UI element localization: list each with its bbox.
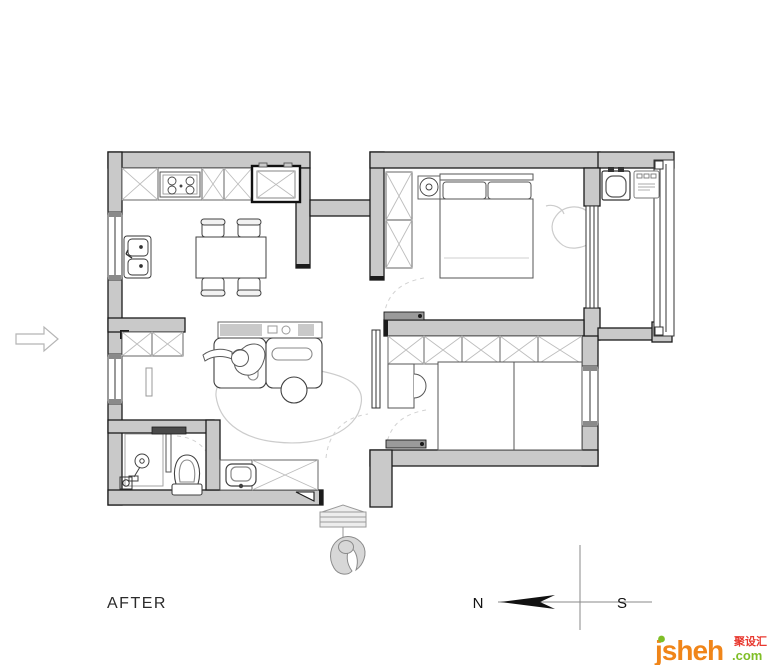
- window-kidsroom-right: [582, 366, 598, 426]
- kitchen-sink-icon: [124, 236, 151, 278]
- bedroom-wardrobe: [386, 172, 412, 268]
- wall-bathroom-right: [206, 420, 220, 490]
- dining-chair: [237, 278, 261, 296]
- wall-left-b: [108, 278, 122, 356]
- desk-chair: [414, 374, 426, 398]
- bathroom: [120, 427, 202, 495]
- bedroom-sliding-door: [384, 312, 424, 320]
- kidsroom-sliding-door: [386, 440, 426, 448]
- person-head: [339, 541, 354, 554]
- window-left-lower: [108, 354, 122, 404]
- towel-bar: [152, 427, 186, 434]
- shower-partition: [166, 434, 171, 472]
- wall-bedroom-right-upper: [584, 168, 600, 206]
- wall-hall-divider: [108, 318, 185, 332]
- bathroom-pocket-door: [146, 368, 152, 396]
- wall-rooms-divider: [384, 320, 584, 336]
- dining-chair: [201, 219, 225, 237]
- cooktop-icon: [160, 172, 200, 197]
- plan-stage-label: AFTER: [107, 595, 167, 612]
- toilet-icon: [172, 455, 202, 495]
- wall-balcony-bottom: [598, 328, 656, 340]
- tv-console: [218, 322, 322, 338]
- balcony-appliance-icon: [634, 171, 659, 198]
- window-left-upper: [108, 212, 122, 280]
- bedside-lamp-icon: [418, 176, 440, 199]
- wall-left-a: [108, 152, 122, 214]
- fridge-icon: [252, 163, 300, 202]
- dining-table: [196, 237, 266, 278]
- washing-machine-icon: [602, 167, 630, 200]
- compass: N S: [473, 545, 652, 630]
- bedroom-door-swing: [384, 278, 424, 316]
- double-bed: [440, 174, 533, 278]
- logo-j-dot: [658, 636, 665, 643]
- logo-tld-text: .com: [732, 648, 762, 663]
- sofa: [214, 338, 322, 388]
- washbasin-icon: [226, 464, 256, 488]
- floor-plan-canvas: AFTER N S jsheh 聚设汇 .com: [0, 0, 770, 665]
- compass-north-label: N: [473, 595, 484, 612]
- entry-person: [331, 537, 366, 575]
- desk: [388, 364, 414, 408]
- dining-set: [196, 219, 266, 296]
- wall-kidsroom-right-a: [582, 336, 598, 368]
- living-glass-partition: [372, 330, 380, 408]
- wall-bedroom-top: [370, 152, 600, 168]
- compass-south-label: S: [617, 595, 627, 612]
- site-logo: jsheh 聚设汇 .com: [654, 634, 767, 665]
- wall-bridge: [310, 200, 372, 216]
- balcony-door-threshold: [586, 206, 598, 308]
- kidsroom-wardrobe: [388, 336, 582, 364]
- balcony: [602, 167, 659, 200]
- wall-kidsroom-bottom: [370, 450, 598, 466]
- logo-chinese-text: 聚设汇: [733, 634, 767, 648]
- kidsroom: [386, 336, 582, 450]
- dining-chair: [201, 278, 225, 296]
- bedroom: [384, 172, 533, 320]
- single-bed: [438, 362, 582, 450]
- dining-chair: [237, 219, 261, 237]
- entry-direction-arrow: [16, 327, 58, 351]
- floor-plan-page: AFTER N S jsheh 聚设汇 .com: [0, 0, 770, 665]
- wall-bottom-left-block: [108, 490, 323, 505]
- wall-entry-stub: [370, 450, 392, 507]
- ottoman: [281, 377, 307, 403]
- entry-mat: [320, 505, 366, 537]
- hall-cabinet: [122, 332, 183, 356]
- wall-corridor-upper: [370, 152, 384, 280]
